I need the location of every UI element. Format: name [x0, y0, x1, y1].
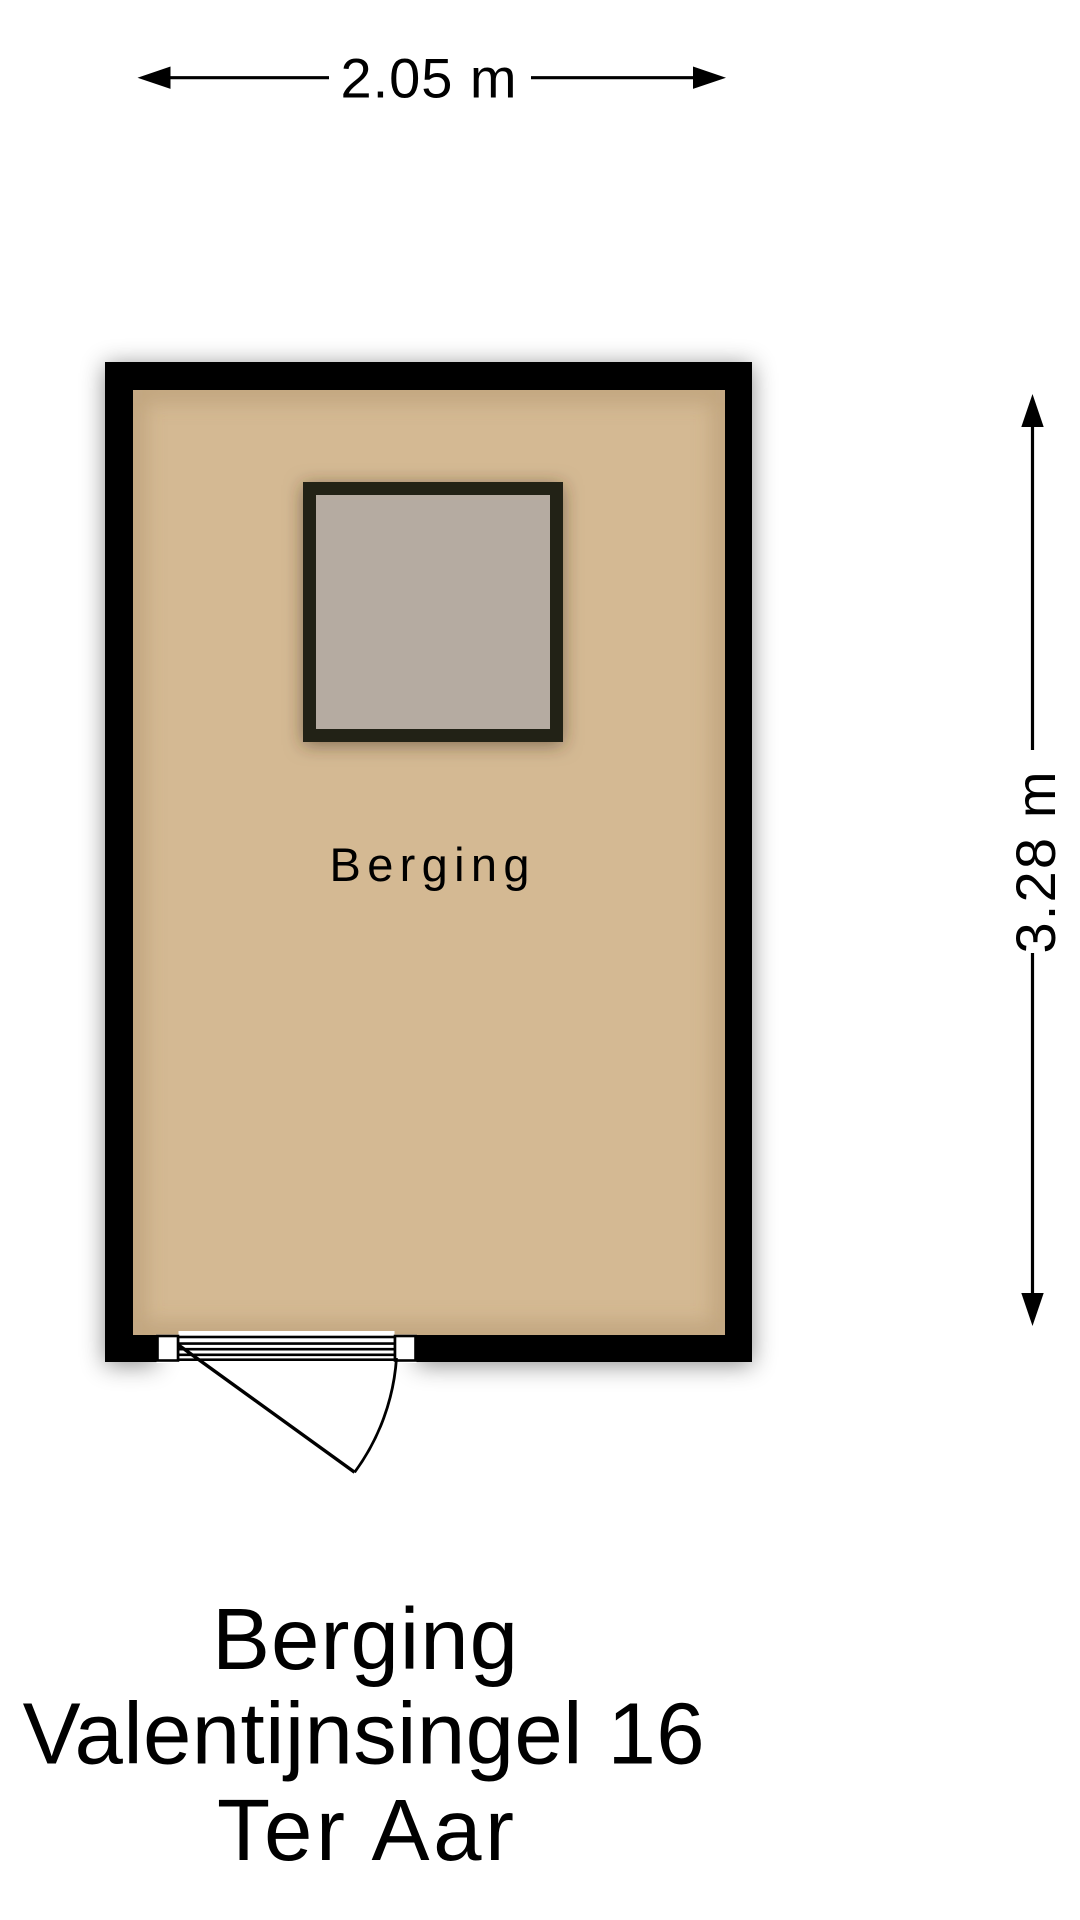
svg-text:Valentijnsingel 16: Valentijnsingel 16: [23, 1686, 705, 1783]
svg-text:2.05 m: 2.05 m: [341, 47, 517, 110]
svg-text:Berging: Berging: [212, 1591, 518, 1688]
svg-text:3.28 m: 3.28 m: [1004, 772, 1067, 954]
svg-text:Berging: Berging: [330, 838, 535, 891]
